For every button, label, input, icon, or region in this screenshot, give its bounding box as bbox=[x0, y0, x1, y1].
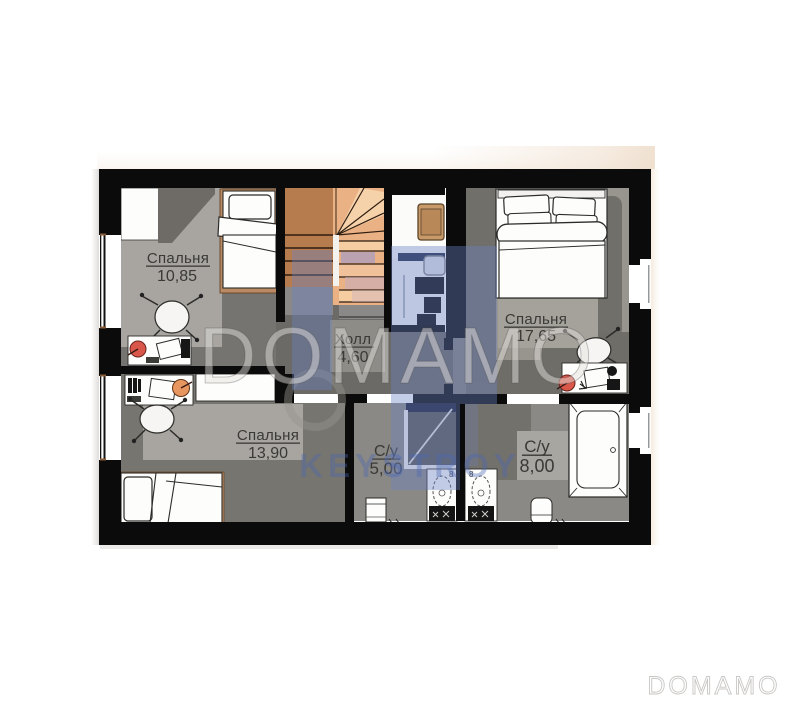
svg-text:10,85: 10,85 bbox=[157, 268, 197, 285]
svg-text:13,90: 13,90 bbox=[248, 445, 288, 462]
svg-text:KEYSTROY: KEYSTROY bbox=[299, 447, 521, 484]
svg-text:8,00: 8,00 bbox=[519, 456, 554, 476]
svg-text:DOMAMO: DOMAMO bbox=[647, 672, 780, 700]
svg-text:Спальня: Спальня bbox=[147, 250, 209, 267]
svg-text:DOMAMO: DOMAMO bbox=[199, 311, 598, 400]
svg-text:Спальня: Спальня bbox=[237, 427, 299, 444]
svg-text:С/у: С/у bbox=[524, 437, 550, 456]
